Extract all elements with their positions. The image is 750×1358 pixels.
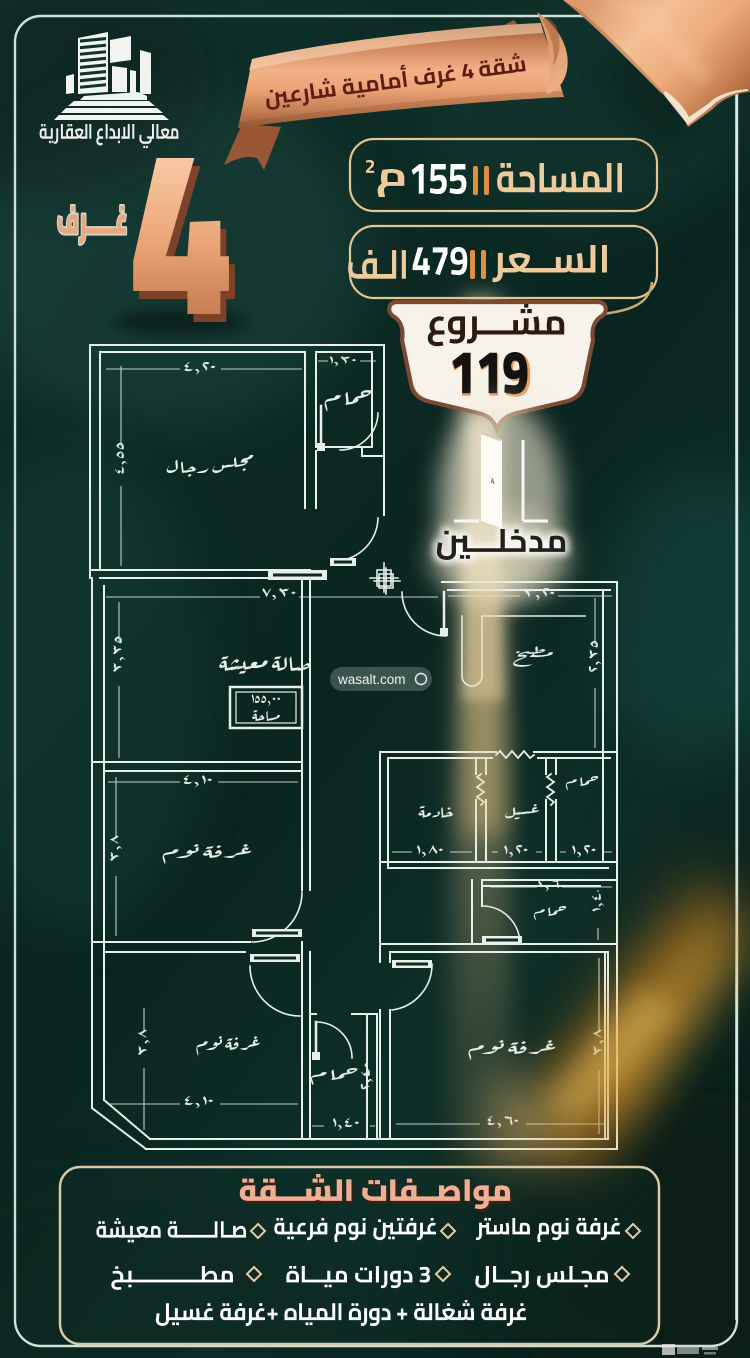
svg-text:wasalt.com: wasalt.com xyxy=(337,672,406,687)
